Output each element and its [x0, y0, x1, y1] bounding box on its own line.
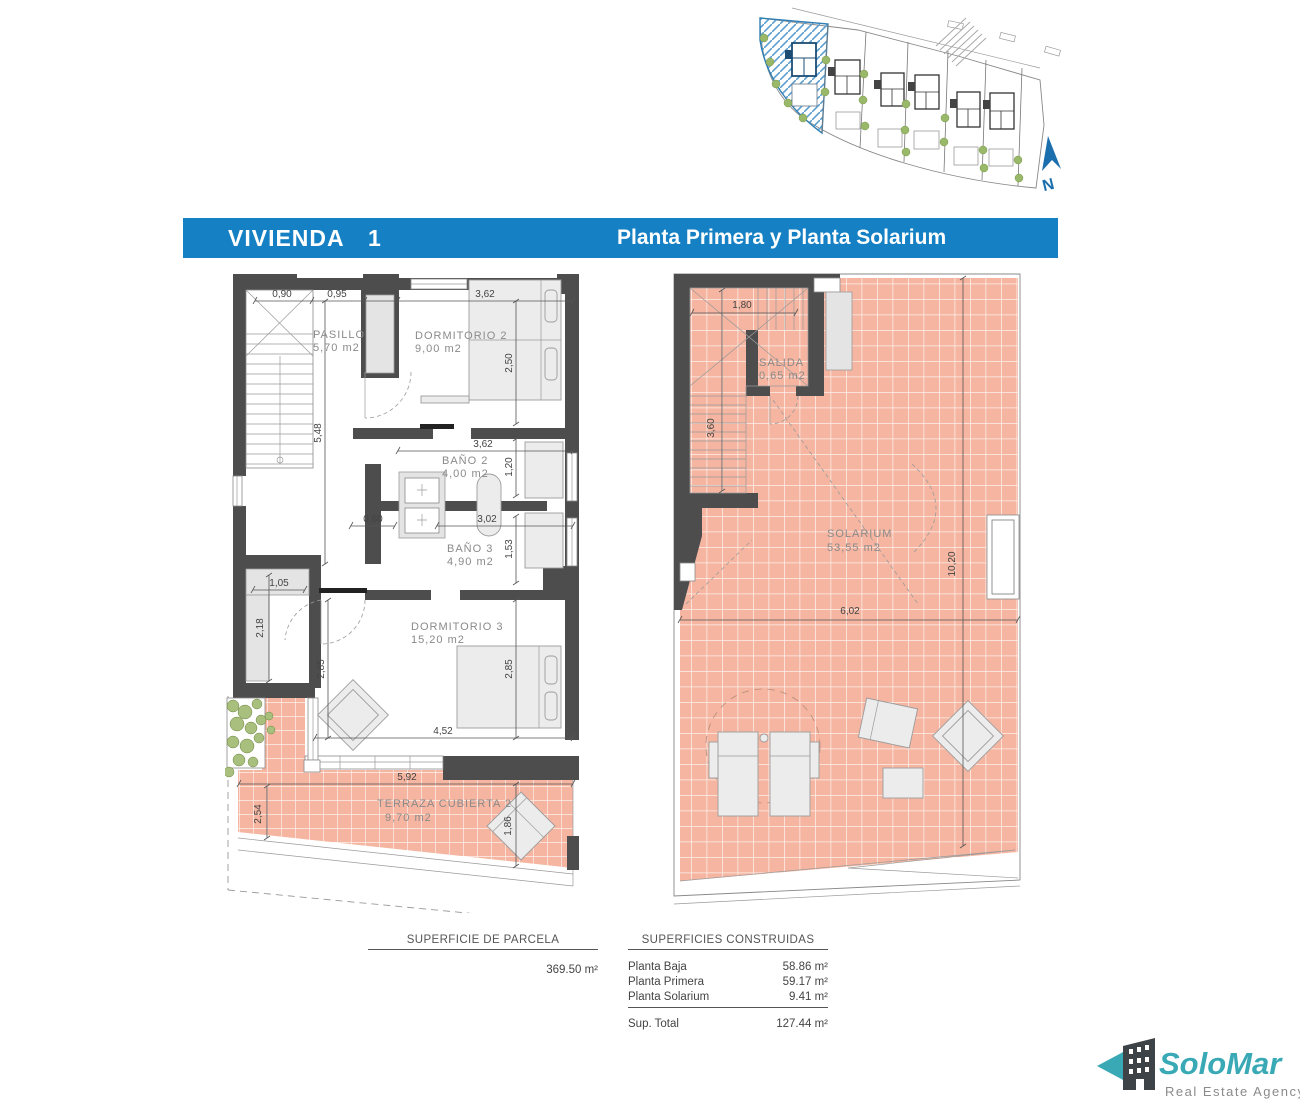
- room-label-solarium: SOLARIUM: [827, 528, 892, 540]
- summary-parcela: SUPERFICIE DE PARCELA 369.50 m²: [368, 934, 598, 976]
- room-area-solarium: 53,55 m2: [827, 542, 881, 554]
- room-area-dormitorio2: 9,00 m2: [415, 343, 462, 355]
- total-label: Sup. Total: [628, 1017, 679, 1032]
- table-total-row: Sup. Total 127.44 m²: [628, 1017, 828, 1032]
- dim-label: 0,90: [272, 289, 292, 300]
- site-house-5: [950, 92, 980, 165]
- parcela-value: 369.50 m²: [368, 964, 598, 976]
- dim-label: 0,60: [363, 514, 383, 525]
- table-row: Planta Baja 58.86 m²: [628, 960, 828, 975]
- dim-label: 6,02: [840, 606, 860, 617]
- room-area-terraza: 9,70 m2: [385, 812, 432, 824]
- dim-label: 2,18: [255, 618, 266, 638]
- room-label-bano3: BAÑO 3: [447, 542, 493, 555]
- room-area-bano3: 4,90 m2: [447, 556, 494, 568]
- row-value: 58.86 m²: [783, 960, 828, 975]
- dim-label: 3,02: [477, 514, 497, 525]
- north-arrow: N: [1041, 136, 1061, 195]
- room-area-dormitorio3: 15,20 m2: [411, 634, 465, 646]
- dim-label: 3,60: [706, 418, 717, 438]
- dim-label: 2,50: [504, 353, 515, 373]
- dim-label: 0,95: [327, 289, 347, 300]
- room-label-salida: SALIDA: [759, 357, 804, 369]
- room-labels: PASILLO 5,70 m2 DORMITORIO 2 9,00 m2 BAÑ…: [313, 329, 512, 824]
- north-label: N: [1041, 176, 1056, 195]
- row-value: 9.41 m²: [789, 990, 828, 1005]
- title-unit-number: 1: [368, 218, 381, 258]
- room-area-bano2: 4,00 m2: [442, 468, 489, 480]
- site-house-3: [874, 73, 904, 147]
- staircase: [246, 290, 313, 468]
- floor-plan-planta-primera: 0,90 0,95 3,62 2,50 5,48 3,62 1,20 0,60 …: [225, 268, 605, 913]
- dim-label: 1,20: [504, 457, 515, 477]
- dim-label: 3,62: [473, 439, 493, 450]
- dim-label: 10,20: [947, 551, 958, 576]
- summary-construidas: SUPERFICIES CONSTRUIDAS Planta Baja 58.8…: [628, 934, 828, 1032]
- row-label: Planta Primera: [628, 975, 704, 990]
- site-house-4: [908, 75, 939, 149]
- construidas-heading: SUPERFICIES CONSTRUIDAS: [628, 934, 828, 950]
- agency-logo: SoloMar Real Estate Agency: [1093, 1032, 1300, 1108]
- dim-label: 2,85: [504, 659, 515, 679]
- title-subtitle: Planta Primera y Planta Solarium: [617, 218, 946, 258]
- page: N VIVIENDA 1 Planta Primera y Planta Sol…: [0, 0, 1300, 1114]
- dim-label: 1,86: [503, 816, 514, 836]
- table-row: Planta Solarium 9.41 m²: [628, 990, 828, 1005]
- dim-label: 4,52: [433, 726, 453, 737]
- title-bar: VIVIENDA 1 Planta Primera y Planta Solar…: [183, 218, 1058, 258]
- site-plan: N: [748, 0, 1078, 205]
- room-label-pasillo: PASILLO: [313, 329, 365, 341]
- site-house-2: [828, 60, 860, 129]
- title-vivienda: VIVIENDA: [228, 218, 345, 258]
- logo-name: SoloMar: [1159, 1046, 1283, 1081]
- dim-label: 2,54: [253, 804, 264, 824]
- dim-label: 1,53: [504, 539, 515, 559]
- storage-box: [987, 515, 1019, 599]
- room-area-salida: 0,65 m2: [759, 370, 806, 382]
- room-label-terraza: TERRAZA CUBIERTA 2: [377, 798, 512, 810]
- dim-label: 3,62: [475, 289, 495, 300]
- row-label: Planta Baja: [628, 960, 687, 975]
- floor-plan-planta-solarium: 1,80 3,60 10,20 6,02 SALIDA 0,65 m2 SOLA…: [660, 268, 1040, 913]
- room-label-bano2: BAÑO 2: [442, 454, 488, 467]
- logo-tagline: Real Estate Agency: [1165, 1084, 1300, 1099]
- dim-label: 2,85: [316, 659, 327, 679]
- dim-label: 1,80: [732, 300, 752, 311]
- total-value: 127.44 m²: [776, 1017, 828, 1032]
- row-value: 59.17 m²: [783, 975, 828, 990]
- parcela-heading: SUPERFICIE DE PARCELA: [368, 934, 598, 950]
- room-area-pasillo: 5,70 m2: [313, 342, 360, 354]
- row-label: Planta Solarium: [628, 990, 709, 1005]
- room-label-dormitorio2: DORMITORIO 2: [415, 330, 507, 342]
- table-row: Planta Primera 59.17 m²: [628, 975, 828, 990]
- dim-label: 1,05: [269, 578, 289, 589]
- room-label-dormitorio3: DORMITORIO 3: [411, 621, 503, 633]
- dim-label: 5,48: [313, 423, 324, 443]
- site-steps: [936, 18, 986, 66]
- dim-label: 5,92: [397, 772, 417, 783]
- logo-building-icon: [1097, 1038, 1155, 1090]
- site-house-6: [983, 93, 1014, 166]
